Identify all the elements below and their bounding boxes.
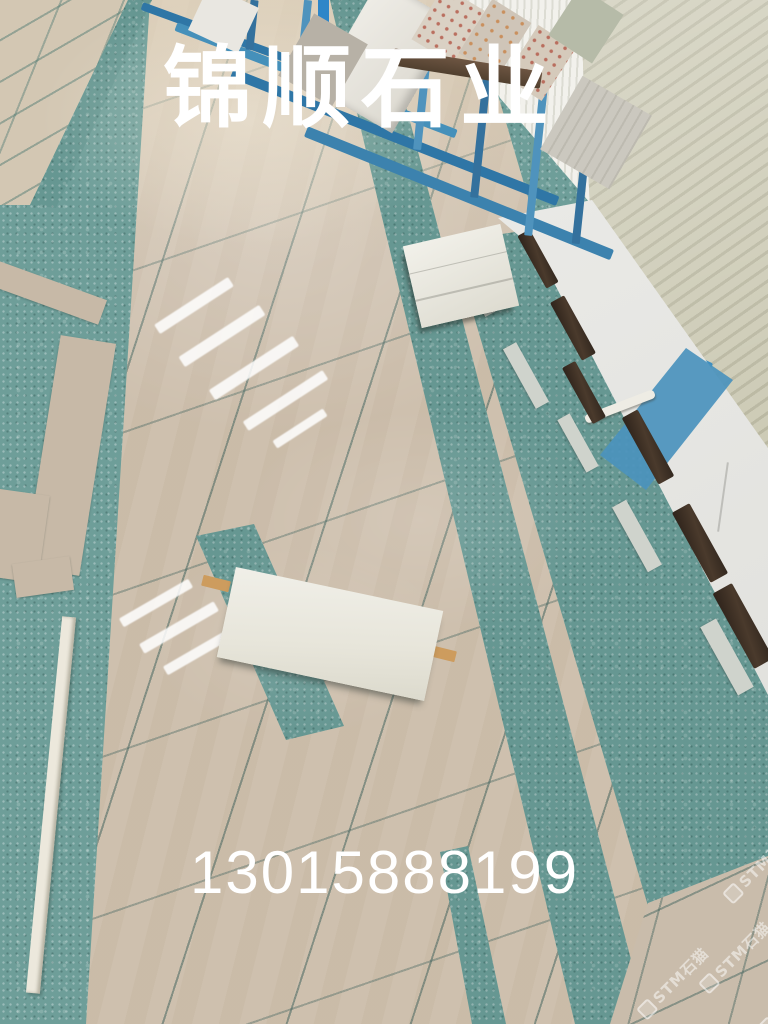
panel-seam — [409, 251, 507, 275]
panel-seam — [415, 278, 513, 302]
factory-floor-photo: 锦顺石业 13015888199 STM石猫 STM石猫 STM石猫 STM石猫 — [0, 0, 768, 1024]
company-name-overlay: 锦顺石业 — [163, 42, 559, 135]
phone-number-overlay: 13015888199 — [190, 838, 579, 907]
